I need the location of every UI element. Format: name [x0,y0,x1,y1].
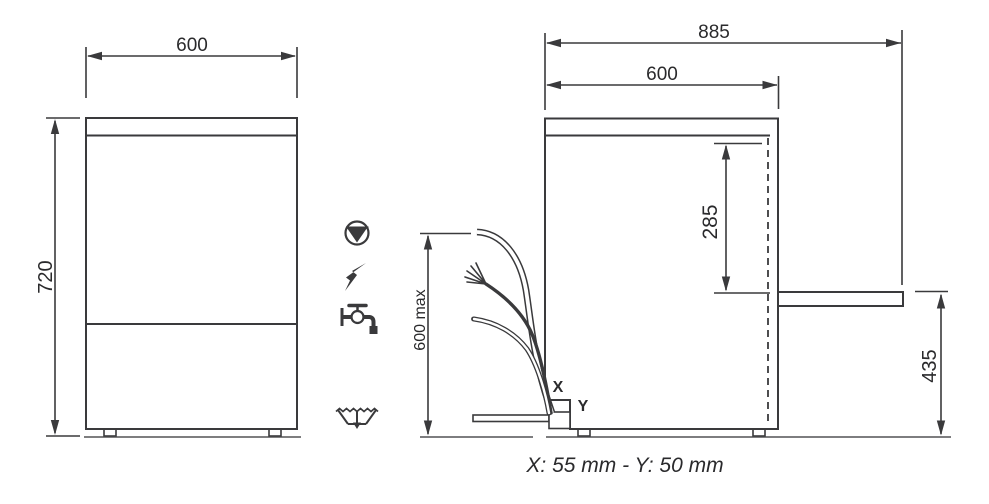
hose-reach-label: 600 max [412,289,429,350]
xy-caption: X: 55 mm - Y: 50 mm [525,454,723,477]
arrow-left-icon [87,52,102,60]
front-left-foot [104,429,116,436]
arrow-down-icon [51,420,59,435]
water-supply-icon [342,306,378,335]
front-view: 600 720 [35,35,301,437]
arrow-left-icon [546,81,561,89]
side-left-foot [578,429,590,436]
side-body-depth-dimension: 600 [546,64,779,109]
arrow-down-icon [424,421,432,436]
power-cable [486,284,551,413]
drain-outlet-pipe [778,292,903,306]
connection-block [549,412,570,429]
arrow-up-icon [51,119,59,134]
drain-icon [336,409,378,430]
connection-icons [336,222,378,430]
arrow-up-icon [424,235,432,250]
installation-diagram: 600 720 [0,0,989,504]
front-width-label: 600 [176,35,208,56]
front-width-dimension: 600 [86,35,297,98]
x-connection-marker: X [553,379,564,396]
side-view: 885 600 285 435 600 [412,22,951,437]
arrow-left-icon [546,39,561,47]
front-height-label: 720 [35,260,57,293]
arrow-right-icon [763,81,778,89]
arrow-down-icon [937,421,945,436]
power-cable-fray [465,263,486,284]
front-right-foot [269,429,281,436]
electric-supply-icon [345,263,366,291]
body-depth-label: 600 [646,64,678,85]
overall-depth-label: 885 [698,22,730,43]
arrow-up-icon [937,294,945,309]
hose-reach-dimension: 600 max [412,234,471,436]
drain-outlet-height-dimension: 435 [915,292,948,436]
arrow-right-icon [281,52,296,60]
inlet-height-label: 285 [699,204,722,239]
floor-inlet-pipe [473,415,549,422]
front-body [86,118,297,429]
hoses [465,232,552,413]
side-body [545,119,778,430]
arrow-right-icon [886,39,901,47]
y-connection-marker: Y [578,398,589,415]
drain-pump-icon [346,222,369,245]
outlet-height-label: 435 [919,349,941,382]
side-right-foot [753,429,765,436]
installation-diagram-page: 600 720 [0,0,989,504]
front-height-dimension: 720 [35,118,80,436]
